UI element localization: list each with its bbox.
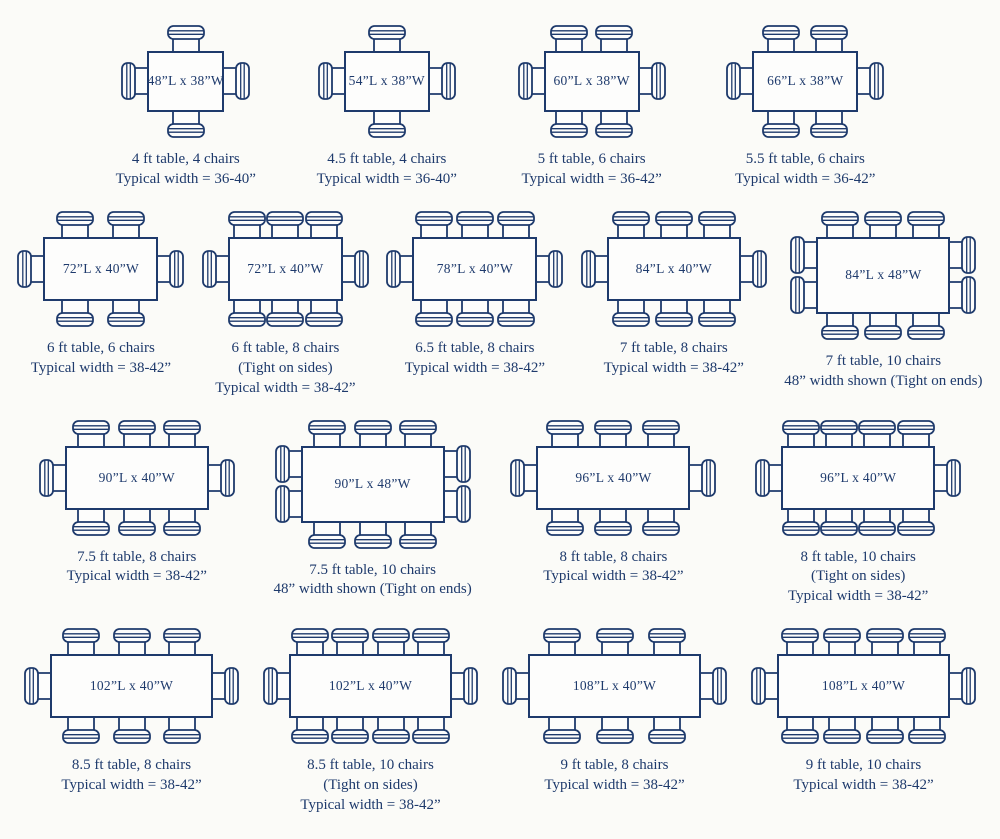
table-caption: 8.5 ft table, 10 chairs(Tight on sides)T… bbox=[300, 756, 440, 816]
table-dimensions-label: 90”L x 48”W bbox=[334, 476, 410, 492]
table-diagram: 72”L x 40”W bbox=[202, 211, 369, 327]
caption-line: Typical width = 38-42” bbox=[61, 776, 201, 796]
table-caption: 9 ft table, 10 chairsTypical width = 38-… bbox=[793, 756, 933, 796]
caption-line: 7 ft table, 8 chairs bbox=[604, 339, 744, 359]
table-diagram: 78”L x 40”W bbox=[386, 211, 563, 327]
diagram-row-4: 102”L x 40”W8.5 ft table, 8 chairsTypica… bbox=[0, 628, 1000, 816]
table-caption: 5.5 ft table, 6 chairsTypical width = 36… bbox=[735, 150, 875, 190]
table-figure: 66”L x 38”W5.5 ft table, 6 chairsTypical… bbox=[726, 25, 884, 190]
table-diagram: 96”L x 40”W bbox=[510, 420, 716, 536]
table-figure: 72”L x 40”W6 ft table, 8 chairs(Tight on… bbox=[202, 211, 369, 399]
caption-line: 8 ft table, 8 chairs bbox=[543, 548, 683, 568]
table-diagram: 84”L x 40”W bbox=[581, 211, 767, 327]
table-figure: 108”L x 40”W9 ft table, 10 chairsTypical… bbox=[751, 628, 976, 796]
table-top: 96”L x 40”W bbox=[536, 446, 690, 510]
caption-line: 4.5 ft table, 4 chairs bbox=[317, 150, 457, 170]
caption-line: 9 ft table, 10 chairs bbox=[793, 756, 933, 776]
caption-line: (Tight on sides) bbox=[300, 776, 440, 796]
table-figure: 84”L x 40”W7 ft table, 8 chairsTypical w… bbox=[581, 211, 767, 379]
table-dimensions-label: 72”L x 40”W bbox=[63, 261, 139, 277]
caption-line: Typical width = 38-42” bbox=[31, 359, 171, 379]
caption-line: 7.5 ft table, 10 chairs bbox=[274, 561, 472, 581]
table-top: 96”L x 40”W bbox=[781, 446, 935, 510]
caption-line: Typical width = 38-42” bbox=[543, 567, 683, 587]
table-diagram: 54”L x 38”W bbox=[318, 25, 456, 138]
table-top: 72”L x 40”W bbox=[43, 237, 158, 301]
table-caption: 9 ft table, 8 chairsTypical width = 38-4… bbox=[544, 756, 684, 796]
table-figure: 78”L x 40”W6.5 ft table, 8 chairsTypical… bbox=[386, 211, 563, 379]
table-figure: 84”L x 48”W7 ft table, 10 chairs48” widt… bbox=[784, 211, 982, 392]
caption-line: Typical width = 38-42” bbox=[67, 567, 207, 587]
table-caption: 7 ft table, 10 chairs48” width shown (Ti… bbox=[784, 352, 982, 392]
table-dimensions-label: 78”L x 40”W bbox=[437, 261, 513, 277]
table-dimensions-label: 60”L x 38”W bbox=[553, 73, 629, 89]
table-figure: 102”L x 40”W8.5 ft table, 10 chairs(Tigh… bbox=[263, 628, 478, 816]
caption-line: (Tight on sides) bbox=[215, 359, 355, 379]
table-diagram: 102”L x 40”W bbox=[263, 628, 478, 744]
table-dimensions-label: 102”L x 40”W bbox=[90, 678, 173, 694]
table-caption: 5 ft table, 6 chairsTypical width = 36-4… bbox=[521, 150, 661, 190]
table-dimensions-label: 108”L x 40”W bbox=[573, 678, 656, 694]
caption-line: 7.5 ft table, 8 chairs bbox=[67, 548, 207, 568]
table-figure: 90”L x 48”W7.5 ft table, 10 chairs48” wi… bbox=[274, 420, 472, 601]
table-caption: 6 ft table, 8 chairs(Tight on sides)Typi… bbox=[215, 339, 355, 399]
diagram-row-3: 90”L x 40”W7.5 ft table, 8 chairsTypical… bbox=[0, 420, 1000, 608]
caption-line: 5 ft table, 6 chairs bbox=[521, 150, 661, 170]
table-diagram: 90”L x 48”W bbox=[275, 420, 471, 549]
diagram-row-1: 48”L x 38”W4 ft table, 4 chairsTypical w… bbox=[0, 25, 1000, 190]
table-dimensions-label: 72”L x 40”W bbox=[247, 261, 323, 277]
table-dimensions-label: 96”L x 40”W bbox=[820, 470, 896, 486]
caption-line: Typical width = 38-42” bbox=[215, 379, 355, 399]
table-caption: 7.5 ft table, 10 chairs48” width shown (… bbox=[274, 561, 472, 601]
caption-line: 8 ft table, 10 chairs bbox=[788, 548, 928, 568]
caption-line: 6 ft table, 8 chairs bbox=[215, 339, 355, 359]
table-caption: 4 ft table, 4 chairsTypical width = 36-4… bbox=[116, 150, 256, 190]
table-figure: 72”L x 40”W6 ft table, 6 chairsTypical w… bbox=[17, 211, 184, 379]
table-dimensions-label: 54”L x 38”W bbox=[349, 73, 425, 89]
caption-line: Typical width = 36-42” bbox=[521, 170, 661, 190]
table-figure: 90”L x 40”W7.5 ft table, 8 chairsTypical… bbox=[39, 420, 235, 588]
table-caption: 4.5 ft table, 4 chairsTypical width = 36… bbox=[317, 150, 457, 190]
caption-line: Typical width = 38-42” bbox=[405, 359, 545, 379]
table-top: 90”L x 48”W bbox=[301, 446, 445, 523]
table-dimensions-label: 84”L x 40”W bbox=[636, 261, 712, 277]
table-dimensions-label: 96”L x 40”W bbox=[575, 470, 651, 486]
caption-line: Typical width = 36-40” bbox=[116, 170, 256, 190]
table-figure: 48”L x 38”W4 ft table, 4 chairsTypical w… bbox=[116, 25, 256, 190]
table-top: 84”L x 40”W bbox=[607, 237, 741, 301]
caption-line: 6.5 ft table, 8 chairs bbox=[405, 339, 545, 359]
table-top: 108”L x 40”W bbox=[777, 654, 950, 718]
table-dimensions-label: 48”L x 38”W bbox=[148, 73, 224, 89]
table-diagram: 60”L x 38”W bbox=[518, 25, 666, 138]
caption-line: Typical width = 36-42” bbox=[735, 170, 875, 190]
table-diagram: 96”L x 40”W bbox=[755, 420, 961, 536]
table-dimensions-label: 108”L x 40”W bbox=[822, 678, 905, 694]
table-figure: 96”L x 40”W8 ft table, 8 chairsTypical w… bbox=[510, 420, 716, 588]
table-caption: 7.5 ft table, 8 chairsTypical width = 38… bbox=[67, 548, 207, 588]
table-diagram: 90”L x 40”W bbox=[39, 420, 235, 536]
table-top: 102”L x 40”W bbox=[50, 654, 213, 718]
caption-line: 48” width shown (Tight on ends) bbox=[274, 580, 472, 600]
table-caption: 6 ft table, 6 chairsTypical width = 38-4… bbox=[31, 339, 171, 379]
table-dimensions-label: 66”L x 38”W bbox=[767, 73, 843, 89]
table-top: 66”L x 38”W bbox=[752, 51, 858, 112]
table-figure: 108”L x 40”W9 ft table, 8 chairsTypical … bbox=[502, 628, 727, 796]
caption-line: Typical width = 36-40” bbox=[317, 170, 457, 190]
caption-line: (Tight on sides) bbox=[788, 567, 928, 587]
table-top: 78”L x 40”W bbox=[412, 237, 537, 301]
table-dimensions-label: 84”L x 48”W bbox=[845, 267, 921, 283]
caption-line: Typical width = 38-42” bbox=[788, 587, 928, 607]
table-caption: 7 ft table, 8 chairsTypical width = 38-4… bbox=[604, 339, 744, 379]
table-figure: 96”L x 40”W8 ft table, 10 chairs(Tight o… bbox=[755, 420, 961, 608]
caption-line: 5.5 ft table, 6 chairs bbox=[735, 150, 875, 170]
table-caption: 8 ft table, 10 chairs(Tight on sides)Typ… bbox=[788, 548, 928, 608]
table-top: 54”L x 38”W bbox=[344, 51, 430, 112]
caption-line: Typical width = 38-42” bbox=[544, 776, 684, 796]
table-caption: 8 ft table, 8 chairsTypical width = 38-4… bbox=[543, 548, 683, 588]
table-top: 108”L x 40”W bbox=[528, 654, 701, 718]
caption-line: 48” width shown (Tight on ends) bbox=[784, 372, 982, 392]
table-caption: 8.5 ft table, 8 chairsTypical width = 38… bbox=[61, 756, 201, 796]
table-top: 90”L x 40”W bbox=[65, 446, 209, 510]
table-figure: 60”L x 38”W5 ft table, 6 chairsTypical w… bbox=[518, 25, 666, 190]
caption-line: 8.5 ft table, 10 chairs bbox=[300, 756, 440, 776]
table-dimensions-label: 90”L x 40”W bbox=[99, 470, 175, 486]
diagram-row-2: 72”L x 40”W6 ft table, 6 chairsTypical w… bbox=[0, 211, 1000, 399]
table-figure: 54”L x 38”W4.5 ft table, 4 chairsTypical… bbox=[317, 25, 457, 190]
table-dimensions-label: 102”L x 40”W bbox=[329, 678, 412, 694]
table-caption: 6.5 ft table, 8 chairsTypical width = 38… bbox=[405, 339, 545, 379]
table-figure: 102”L x 40”W8.5 ft table, 8 chairsTypica… bbox=[24, 628, 239, 796]
caption-line: 4 ft table, 4 chairs bbox=[116, 150, 256, 170]
table-top: 48”L x 38”W bbox=[147, 51, 224, 112]
table-diagram: 108”L x 40”W bbox=[502, 628, 727, 744]
caption-line: 8.5 ft table, 8 chairs bbox=[61, 756, 201, 776]
caption-line: Typical width = 38-42” bbox=[300, 796, 440, 816]
table-diagram: 48”L x 38”W bbox=[121, 25, 250, 138]
caption-line: 7 ft table, 10 chairs bbox=[784, 352, 982, 372]
table-diagram: 84”L x 48”W bbox=[790, 211, 976, 340]
table-top: 84”L x 48”W bbox=[816, 237, 950, 314]
caption-line: Typical width = 38-42” bbox=[793, 776, 933, 796]
caption-line: 9 ft table, 8 chairs bbox=[544, 756, 684, 776]
caption-line: 6 ft table, 6 chairs bbox=[31, 339, 171, 359]
table-diagram: 102”L x 40”W bbox=[24, 628, 239, 744]
table-diagram: 108”L x 40”W bbox=[751, 628, 976, 744]
table-top: 102”L x 40”W bbox=[289, 654, 452, 718]
caption-line: Typical width = 38-42” bbox=[604, 359, 744, 379]
table-top: 72”L x 40”W bbox=[228, 237, 343, 301]
table-diagram: 66”L x 38”W bbox=[726, 25, 884, 138]
table-diagram: 72”L x 40”W bbox=[17, 211, 184, 327]
table-size-guide: 48”L x 38”W4 ft table, 4 chairsTypical w… bbox=[0, 0, 1000, 839]
table-top: 60”L x 38”W bbox=[544, 51, 640, 112]
